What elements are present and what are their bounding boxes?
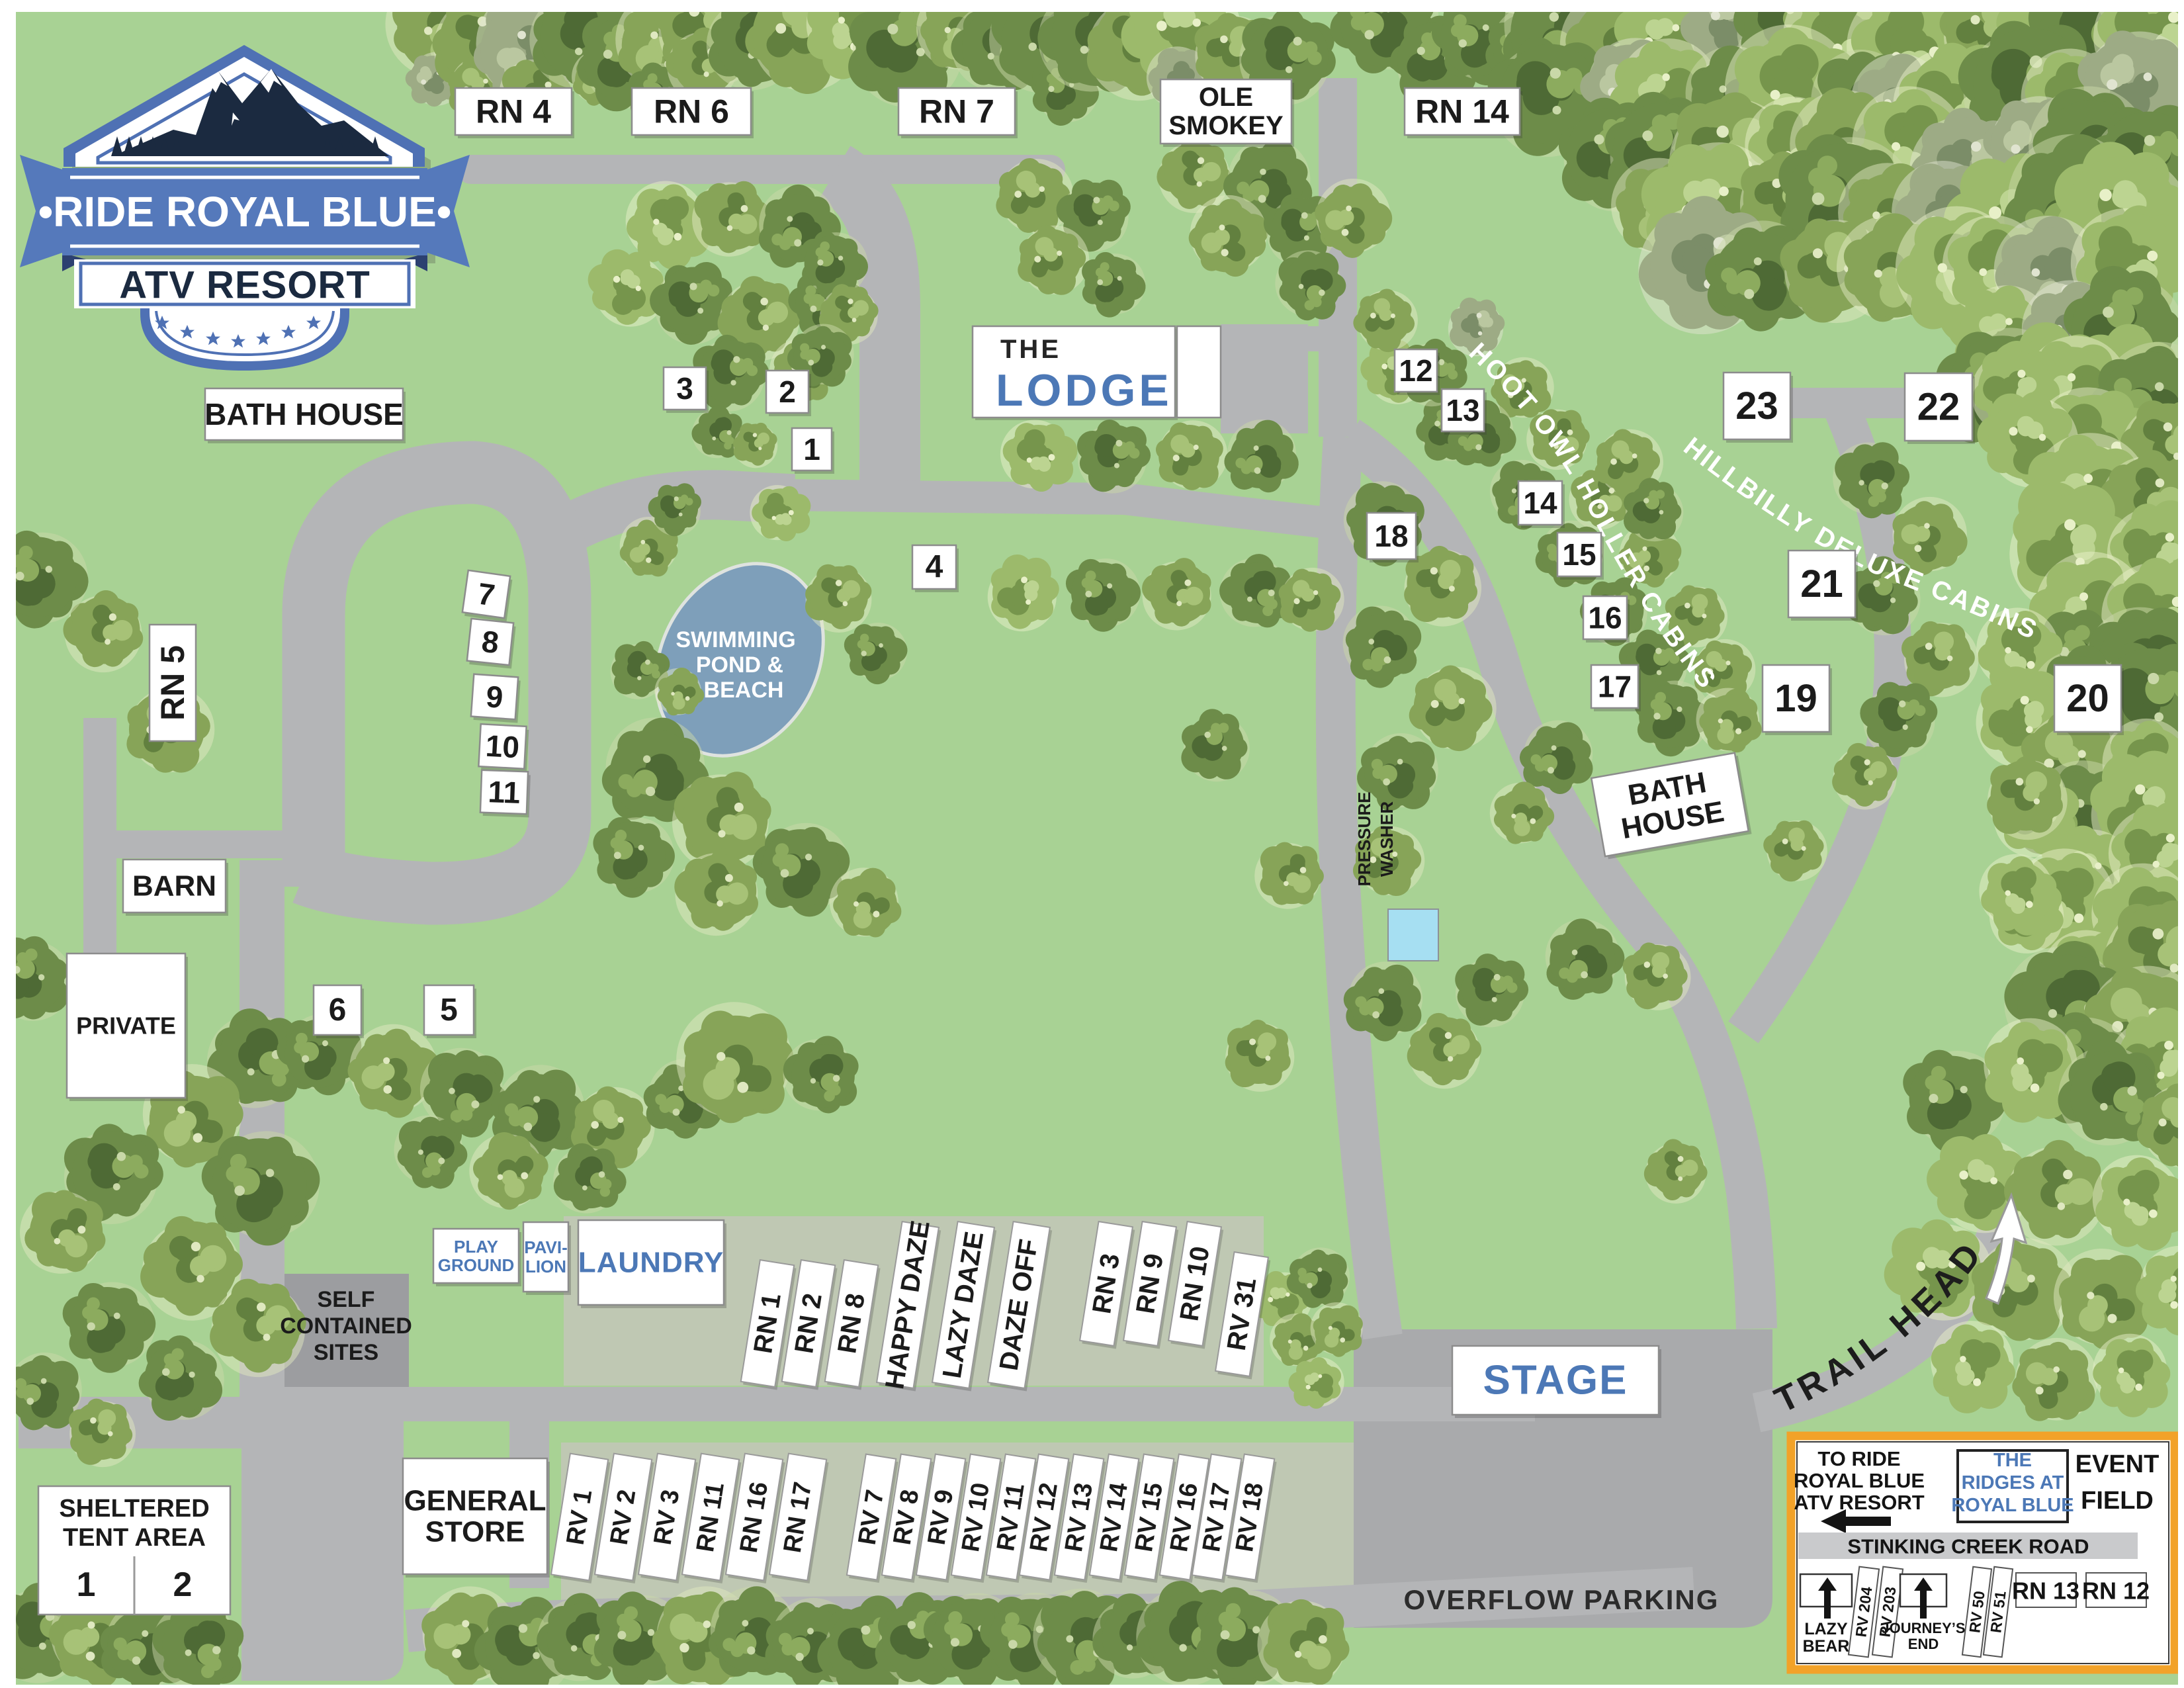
svg-text:5: 5 <box>440 993 458 1028</box>
svg-text:SELF: SELF <box>318 1287 375 1312</box>
svg-text:10: 10 <box>485 729 521 765</box>
svg-text:RIDGES AT: RIDGES AT <box>1962 1472 2064 1493</box>
svg-text:LION: LION <box>525 1257 566 1276</box>
svg-text:WASHER: WASHER <box>1377 801 1397 877</box>
svg-text:LAZY: LAZY <box>1804 1620 1848 1638</box>
svg-text:TO RIDE: TO RIDE <box>1817 1447 1900 1470</box>
svg-text:RN 5: RN 5 <box>154 645 191 721</box>
svg-text:RN 7: RN 7 <box>919 93 994 130</box>
svg-text:FIELD: FIELD <box>2081 1487 2154 1515</box>
svg-text:STINKING CREEK ROAD: STINKING CREEK ROAD <box>1847 1535 2089 1558</box>
svg-text:ATV RESORT: ATV RESORT <box>1794 1491 1925 1514</box>
svg-text:GROUND: GROUND <box>438 1255 515 1275</box>
svg-text:PRESSURE: PRESSURE <box>1354 791 1374 886</box>
svg-text:TENT AREA: TENT AREA <box>63 1524 206 1552</box>
svg-text:3: 3 <box>676 371 693 406</box>
svg-text:RN 6: RN 6 <box>654 93 729 130</box>
svg-text:CONTAINED: CONTAINED <box>280 1313 412 1339</box>
svg-text:SWIMMING: SWIMMING <box>676 627 795 652</box>
svg-text:12: 12 <box>1399 353 1432 388</box>
svg-text:EVENT: EVENT <box>2075 1450 2160 1478</box>
svg-text:BEACH: BEACH <box>704 678 784 703</box>
svg-text:THE: THE <box>1000 335 1061 364</box>
svg-text:2: 2 <box>173 1566 193 1604</box>
svg-text:JOURNEY’S: JOURNEY’S <box>1881 1620 1965 1636</box>
svg-text:14: 14 <box>1523 486 1557 520</box>
svg-text:SHELTERED: SHELTERED <box>59 1495 209 1523</box>
svg-text:POND &: POND & <box>696 652 783 678</box>
svg-text:OVERFLOW PARKING: OVERFLOW PARKING <box>1404 1584 1720 1615</box>
svg-text:11: 11 <box>488 774 521 810</box>
svg-text:THE: THE <box>1993 1450 2032 1471</box>
svg-text:RN 14: RN 14 <box>1415 93 1509 130</box>
svg-text:RN 13: RN 13 <box>2012 1577 2079 1605</box>
svg-text:19: 19 <box>1774 677 1817 720</box>
svg-text:PAVI-: PAVI- <box>524 1237 567 1257</box>
svg-text:15: 15 <box>1562 537 1596 572</box>
svg-text:20: 20 <box>2066 677 2109 720</box>
svg-text:ROYAL BLUE: ROYAL BLUE <box>1951 1495 2074 1516</box>
svg-text:GENERAL: GENERAL <box>404 1485 546 1517</box>
svg-text:BARN: BARN <box>132 870 216 903</box>
svg-text:1: 1 <box>803 432 820 466</box>
svg-text:RN 12: RN 12 <box>2082 1577 2150 1605</box>
svg-text:STAGE: STAGE <box>1483 1358 1628 1403</box>
svg-text:SITES: SITES <box>314 1340 378 1365</box>
svg-text:2: 2 <box>779 375 796 409</box>
svg-text:LODGE: LODGE <box>996 365 1172 416</box>
svg-text:SMOKEY: SMOKEY <box>1168 111 1284 140</box>
svg-text:22: 22 <box>1917 386 1960 429</box>
svg-text:LAUNDRY: LAUNDRY <box>578 1247 724 1279</box>
svg-text:OLE: OLE <box>1199 83 1253 112</box>
svg-text:PRIVATE: PRIVATE <box>76 1012 176 1040</box>
svg-text:PLAY: PLAY <box>454 1237 498 1257</box>
svg-text:BATH HOUSE: BATH HOUSE <box>204 397 404 431</box>
svg-text:8: 8 <box>480 624 501 660</box>
svg-text:BEAR: BEAR <box>1803 1637 1850 1656</box>
svg-text:STORE: STORE <box>425 1516 525 1548</box>
svg-text:4: 4 <box>926 550 943 585</box>
svg-text:13: 13 <box>1446 393 1479 427</box>
svg-text:ATV RESORT: ATV RESORT <box>119 264 371 307</box>
svg-text:•RIDE ROYAL BLUE•: •RIDE ROYAL BLUE• <box>38 188 451 236</box>
svg-text:21: 21 <box>1800 562 1843 605</box>
svg-text:16: 16 <box>1588 601 1622 635</box>
svg-text:9: 9 <box>485 679 504 715</box>
svg-text:17: 17 <box>1598 670 1632 704</box>
svg-text:END: END <box>1908 1636 1939 1652</box>
svg-text:1: 1 <box>77 1566 96 1604</box>
svg-text:6: 6 <box>329 993 347 1028</box>
svg-text:ROYAL BLUE: ROYAL BLUE <box>1794 1469 1925 1492</box>
svg-text:RN 4: RN 4 <box>476 93 551 130</box>
svg-text:23: 23 <box>1735 384 1778 427</box>
svg-text:18: 18 <box>1374 519 1408 553</box>
